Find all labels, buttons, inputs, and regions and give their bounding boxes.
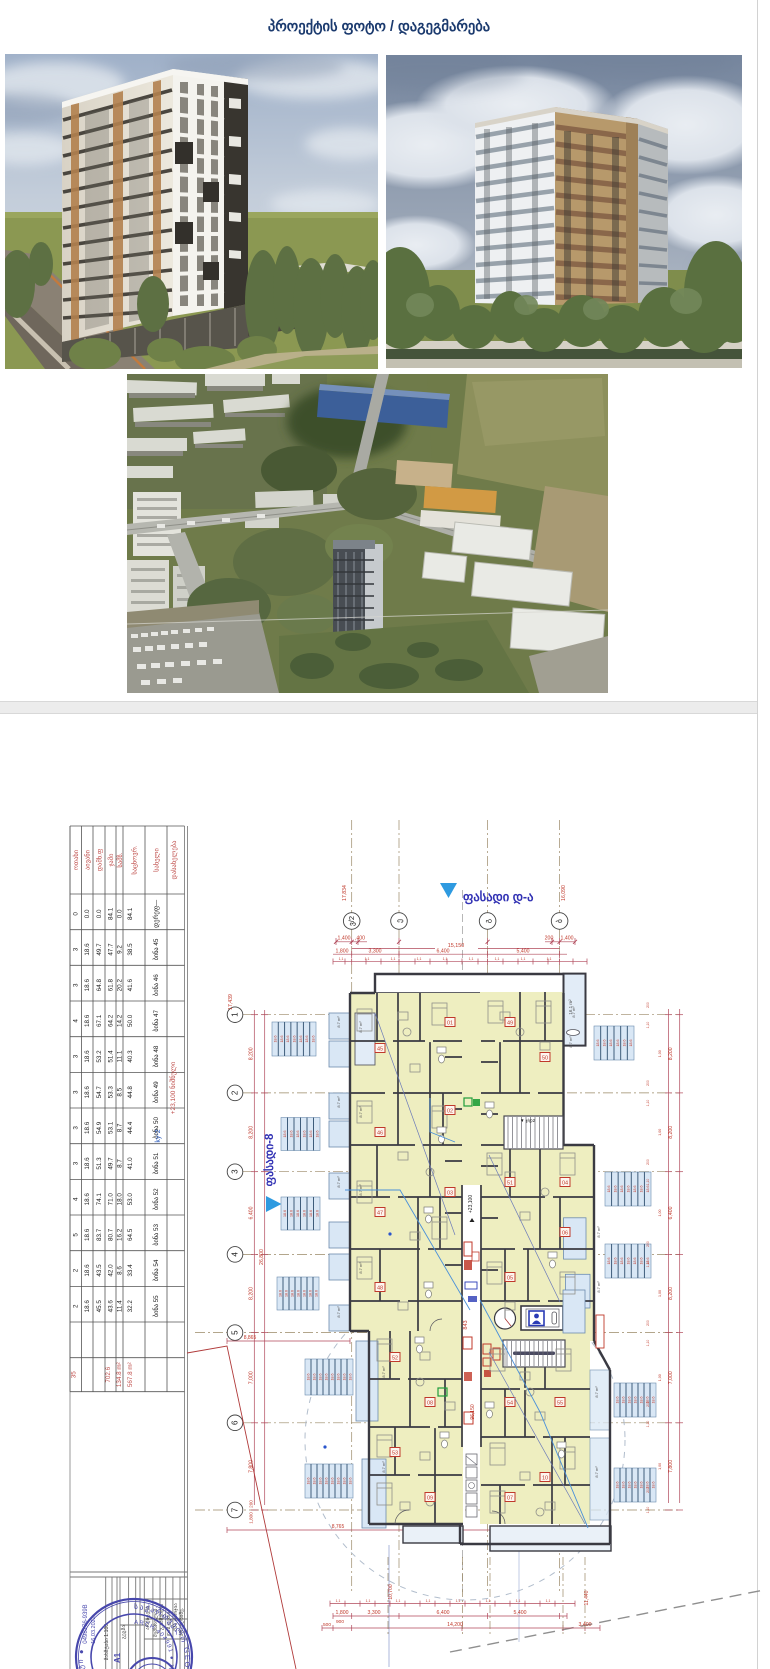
svg-text:ბინა 52: ბინა 52 [152,1188,160,1210]
svg-text:სახელი: სახელი [153,848,161,872]
svg-text:18.6: 18.6 [84,979,91,992]
svg-text:18.6: 18.6 [286,1036,290,1043]
svg-text:ბინა 47: ბინა 47 [152,1009,160,1031]
svg-text:54.9: 54.9 [96,1121,103,1134]
svg-text:1,1: 1,1 [391,957,396,961]
svg-text:1,800: 1,800 [249,1512,254,1524]
svg-text:8.7 m²: 8.7 m² [594,1466,599,1478]
svg-text:48: 48 [377,1286,383,1292]
svg-text:A1: A1 [113,1652,122,1663]
svg-text:67.1: 67.1 [96,1014,103,1027]
svg-text:200: 200 [646,1002,650,1008]
svg-text:51.4: 51.4 [108,1050,115,1063]
svg-text:18.6: 18.6 [289,1210,293,1217]
svg-text:54: 54 [507,1401,513,1407]
svg-text:18.6: 18.6 [616,1040,620,1047]
svg-text:53.3: 53.3 [108,1086,115,1099]
svg-text:3: 3 [73,1054,80,1058]
svg-text:4: 4 [231,1252,240,1257]
svg-text:8,200: 8,200 [668,1126,674,1139]
svg-text:8.7 m²: 8.7 m² [336,1016,341,1028]
svg-text:18.6: 18.6 [331,1374,335,1381]
svg-text:18.6: 18.6 [279,1290,283,1297]
svg-text:53: 53 [392,1451,398,1457]
svg-text:ბინა 51: ბინა 51 [152,1152,160,1174]
svg-text:05: 05 [507,1276,513,1282]
svg-text:49: 49 [507,1021,513,1027]
svg-text:8.7 m²: 8.7 m² [568,1036,573,1048]
svg-text:1,00: 1,00 [658,1050,662,1057]
svg-text:06: 06 [562,1231,568,1237]
svg-text:+23,100: +23,100 [468,1195,474,1213]
svg-text:18.6: 18.6 [315,1131,319,1138]
svg-text:8.7 m²: 8.7 m² [358,1021,363,1033]
svg-text:7,000: 7,000 [249,1371,255,1384]
svg-text:8.7 m²: 8.7 m² [381,1366,386,1378]
svg-text:1,1: 1,1 [426,1599,431,1603]
svg-text:43.6: 43.6 [108,1300,115,1313]
svg-text:18.6: 18.6 [84,1050,91,1063]
svg-text:0: 0 [73,912,80,916]
svg-text:43.5: 43.5 [96,1264,103,1277]
svg-text:83.7: 83.7 [96,1228,103,1241]
svg-text:18.6: 18.6 [622,1397,626,1404]
svg-text:8,200: 8,200 [249,1047,255,1060]
svg-text:3: 3 [73,1090,80,1094]
svg-text:49.7: 49.7 [96,943,103,956]
svg-text:18.6: 18.6 [331,1478,335,1485]
svg-text:1,400: 1,400 [561,936,574,942]
svg-text:1,1: 1,1 [521,957,526,961]
svg-text:11.1: 11.1 [117,1050,124,1062]
svg-text:18.6: 18.6 [616,1397,620,1404]
svg-text:18.6: 18.6 [291,1290,295,1297]
svg-text:18.6: 18.6 [596,1040,600,1047]
svg-text:17,439: 17,439 [228,994,234,1010]
svg-text:18.6: 18.6 [307,1478,311,1485]
svg-text:8.7 m²: 8.7 m² [358,1106,363,1118]
svg-text:18.6: 18.6 [84,1228,91,1241]
svg-text:1,10: 1,10 [646,1421,650,1428]
svg-text:40.3: 40.3 [127,1050,134,1063]
svg-text:18.6: 18.6 [622,1482,626,1489]
svg-text:ოთახი: ოთახი [72,849,80,870]
svg-text:8.7: 8.7 [117,1159,124,1168]
svg-text:18.6: 18.6 [633,1186,637,1193]
svg-text:საცხოვრ.: საცხოვრ. [131,845,139,874]
svg-text:200: 200 [646,1241,650,1247]
svg-text:41.0: 41.0 [127,1157,134,1170]
svg-text:18.6: 18.6 [319,1478,323,1485]
svg-text:ვ/2: ვ/2 [347,916,356,926]
svg-text:38.5: 38.5 [127,943,134,956]
svg-text:4: 4 [73,1197,80,1201]
svg-text:18.6: 18.6 [613,1186,617,1193]
svg-text:900: 900 [336,1619,344,1625]
svg-text:41.6: 41.6 [127,979,134,992]
svg-text:ბინა 53: ბინა 53 [152,1223,160,1245]
svg-text:0.0: 0.0 [117,909,124,918]
svg-text:61.8: 61.8 [108,979,115,992]
svg-text:200: 200 [646,1320,650,1326]
svg-text:02: 02 [447,1109,453,1115]
svg-text:7,000: 7,000 [668,1371,674,1384]
svg-text:53.0: 53.0 [127,1193,134,1206]
svg-text:1,10: 1,10 [646,1022,650,1029]
svg-text:3,300: 3,300 [369,949,382,955]
svg-text:5,400: 5,400 [517,949,530,955]
svg-text:26,800: 26,800 [259,1249,265,1265]
svg-text:18.0: 18.0 [117,1193,124,1206]
svg-text:18.6: 18.6 [616,1482,620,1489]
svg-text:01: 01 [447,1021,453,1027]
svg-text:53.2: 53.2 [96,1050,103,1063]
svg-text:18.6: 18.6 [84,1157,91,1170]
svg-text:11,440: 11,440 [584,1590,590,1605]
svg-text:18.6: 18.6 [305,1036,309,1043]
svg-text:18.6: 18.6 [640,1186,644,1193]
svg-text:18.6: 18.6 [629,1040,633,1047]
svg-text:17,834: 17,834 [342,885,348,901]
svg-text:18.6: 18.6 [634,1482,638,1489]
svg-text:1,00: 1,00 [658,1290,662,1297]
svg-text:ბინა 54: ბინა 54 [152,1259,160,1281]
svg-text:50.0: 50.0 [127,1014,134,1027]
svg-text:18.6: 18.6 [640,1397,644,1404]
svg-text:14.2: 14.2 [117,1014,124,1027]
svg-text:გ: გ [483,918,492,923]
svg-text:1,1: 1,1 [495,957,500,961]
svg-text:8.7 m²: 8.7 m² [381,1461,386,1473]
svg-text:8.6: 8.6 [117,1266,124,1275]
svg-text:6,400: 6,400 [249,1206,255,1219]
svg-text:,400: ,400 [355,936,365,942]
svg-text:134.8 m²: 134.8 m² [116,1362,123,1387]
svg-text:18.6: 18.6 [309,1131,313,1138]
svg-text:18.6: 18.6 [84,1086,91,1099]
svg-text:18.6: 18.6 [307,1374,311,1381]
svg-text:49.7: 49.7 [108,1157,115,1170]
svg-text:1,1: 1,1 [365,957,370,961]
svg-text:84.1: 84.1 [108,907,115,920]
svg-text:18.6: 18.6 [627,1258,631,1265]
svg-text:200: 200 [249,1500,254,1508]
svg-text:ბინა 49: ბინა 49 [152,1081,160,1103]
svg-text:4: 4 [73,1019,80,1023]
svg-text:1,1: 1,1 [456,1599,461,1603]
svg-text:18.6: 18.6 [297,1290,301,1297]
svg-text:33.4: 33.4 [127,1264,134,1277]
svg-text:2: 2 [73,1304,80,1308]
svg-text:1,800: 1,800 [336,949,349,955]
svg-text:3: 3 [73,1161,80,1165]
svg-text:71.0: 71.0 [108,1193,115,1206]
svg-text:8,200: 8,200 [249,1126,255,1139]
svg-text:18.6: 18.6 [343,1478,347,1485]
svg-text:1,1: 1,1 [396,1599,401,1603]
svg-text:18.6: 18.6 [337,1478,341,1485]
svg-text:16.03.2022: 16.03.2022 [91,1616,97,1644]
svg-text:დასახელება: დასახელება [170,840,178,880]
svg-text:1,10: 1,10 [646,1261,650,1268]
svg-text:8,200: 8,200 [249,1287,255,1300]
svg-text:18.6: 18.6 [315,1290,319,1297]
svg-text:500: 500 [323,1622,331,1628]
svg-text:0498176-939B: 0498176-939B [83,1604,89,1643]
svg-text:5,400: 5,400 [514,1610,527,1616]
svg-text:04: 04 [562,1181,568,1187]
svg-text:3: 3 [73,983,80,987]
svg-text:1,1: 1,1 [547,957,552,961]
svg-text:18.6: 18.6 [283,1210,287,1217]
svg-text:8.7 m²: 8.7 m² [571,1006,576,1018]
svg-text:18.6: 18.6 [313,1374,317,1381]
svg-text:8.7: 8.7 [117,1123,124,1132]
svg-text:5: 5 [231,1330,240,1335]
svg-text:18.6: 18.6 [274,1036,278,1043]
svg-text:ე: ე [395,919,404,923]
svg-text:18.6: 18.6 [627,1186,631,1193]
svg-text:18.6: 18.6 [634,1397,638,1404]
svg-text:843: 843 [463,1320,469,1329]
svg-text:18.6: 18.6 [349,1374,353,1381]
svg-text:18.6: 18.6 [613,1258,617,1265]
svg-text:18.6: 18.6 [640,1258,644,1265]
svg-text:ფასადი დ-ა: ფასადი დ-ა [463,889,534,905]
svg-text:702.6: 702.6 [105,1366,112,1382]
svg-text:10: 10 [542,1476,548,1482]
svg-text:ბ: ბ [555,919,564,923]
svg-text:8.7 m²: 8.7 m² [596,1281,601,1293]
svg-text:8.7 m²: 8.7 m² [596,1226,601,1238]
svg-text:54.7: 54.7 [96,1086,103,1099]
svg-text:18.6: 18.6 [296,1210,300,1217]
svg-text:200: 200 [646,1487,650,1493]
svg-text:6,400: 6,400 [437,1610,450,1616]
svg-text:2: 2 [231,1090,240,1095]
svg-text:18.6: 18.6 [628,1397,632,1404]
svg-text:64.8: 64.8 [96,979,103,992]
svg-text:07: 07 [507,1496,513,1502]
svg-text:18.6: 18.6 [628,1482,632,1489]
svg-text:ბინა 48: ბინა 48 [152,1045,160,1067]
svg-text:1,1: 1,1 [469,957,474,961]
svg-text:16,090: 16,090 [561,885,567,901]
svg-text:84.1: 84.1 [127,907,134,920]
svg-text:15,150: 15,150 [448,943,465,949]
svg-text:ky-2: ky-2 [155,1129,162,1142]
svg-text:45.5: 45.5 [96,1300,103,1313]
svg-text:8,200: 8,200 [668,1287,674,1300]
svg-text:18.6: 18.6 [609,1040,613,1047]
svg-text:ბინა 55: ბინა 55 [152,1295,160,1317]
svg-text:567.8 m²: 567.8 m² [127,1362,134,1387]
svg-text:18.6: 18.6 [309,1210,313,1217]
svg-text:3,300: 3,300 [368,1610,381,1616]
svg-text:18.6: 18.6 [652,1397,656,1404]
svg-text:1,400: 1,400 [338,936,351,942]
svg-text:18.6: 18.6 [84,943,91,956]
svg-text:ჯამი: ჯამი [107,853,115,867]
svg-text:18.6: 18.6 [607,1258,611,1265]
svg-text:1,800: 1,800 [336,1610,349,1616]
svg-text:18.6: 18.6 [283,1131,287,1138]
svg-text:18.6: 18.6 [633,1258,637,1265]
svg-text:18.6: 18.6 [84,1014,91,1027]
svg-text:0.0: 0.0 [96,909,103,918]
svg-text:0.0: 0.0 [84,909,91,918]
svg-text:18.6: 18.6 [646,1186,650,1193]
svg-text:6: 6 [231,1420,240,1425]
svg-text:6,400: 6,400 [668,1206,674,1219]
svg-text:1,1: 1,1 [486,1599,491,1603]
svg-text:დამხ.ფ: დამხ.ფ [96,848,104,871]
svg-text:18.6: 18.6 [299,1036,303,1043]
svg-text:7,800: 7,800 [668,1460,674,1473]
svg-text:7: 7 [231,1507,240,1512]
svg-text:ფასადი-8: ფასადი-8 [262,1133,277,1186]
svg-text:ბინა 46: ბინა 46 [152,974,160,996]
svg-text:08: 08 [427,1401,433,1407]
svg-text:1,1: 1,1 [516,1599,521,1603]
svg-text:18.6: 18.6 [337,1374,341,1381]
svg-text:200: 200 [646,1080,650,1086]
svg-text:8.7 m²: 8.7 m² [358,1262,363,1274]
svg-text:45: 45 [377,1047,383,1053]
svg-text:46: 46 [377,1131,383,1137]
svg-text:1,10: 1,10 [646,1179,650,1186]
svg-text:3: 3 [73,1126,80,1130]
svg-text:3: 3 [231,1169,240,1174]
svg-text:18.6: 18.6 [84,1264,91,1277]
svg-text:8,765: 8,765 [332,1524,345,1530]
svg-text:50: 50 [542,1056,548,1062]
svg-text:გეგმა: გეგმა [120,1625,127,1639]
svg-text:18.6: 18.6 [349,1478,353,1485]
svg-text:18.6: 18.6 [603,1040,607,1047]
svg-text:5: 5 [73,1233,80,1237]
svg-text:9.2: 9.2 [117,945,124,954]
svg-text:1,1: 1,1 [443,957,448,961]
svg-text:6,400: 6,400 [437,949,450,955]
svg-text:1,1: 1,1 [336,1599,341,1603]
svg-text:1,10: 1,10 [646,1507,650,1514]
svg-text:18.6: 18.6 [84,1193,91,1206]
svg-text:1,00: 1,00 [658,1210,662,1217]
svg-text:ბინა 45: ბინა 45 [152,938,160,960]
svg-text:1,10: 1,10 [646,1340,650,1347]
svg-text:18.6: 18.6 [302,1210,306,1217]
svg-text:03: 03 [447,1191,453,1197]
svg-text:18.6: 18.6 [311,1036,315,1043]
svg-text:18.6: 18.6 [309,1290,313,1297]
svg-text:18.6: 18.6 [623,1040,627,1047]
svg-text:3: 3 [73,947,80,951]
svg-text:8.7 m²: 8.7 m² [336,1306,341,1318]
svg-text:11.4: 11.4 [117,1300,124,1312]
svg-text:64.5: 64.5 [127,1228,134,1241]
svg-text:18.6: 18.6 [313,1478,317,1485]
svg-text:18.6: 18.6 [302,1131,306,1138]
svg-text:200: 200 [545,936,554,942]
svg-text:8.7 m²: 8.7 m² [336,1096,341,1108]
svg-text:10,700: 10,700 [388,1584,394,1600]
svg-text:1: 1 [231,1012,240,1017]
svg-text:8.7 m²: 8.7 m² [594,1386,599,1398]
svg-text:3,400: 3,400 [579,1622,592,1628]
svg-text:47: 47 [377,1211,383,1217]
svg-text:18.6: 18.6 [607,1186,611,1193]
svg-text:64.2: 64.2 [108,1014,115,1027]
svg-text:18.6: 18.6 [315,1210,319,1217]
svg-text:1,1: 1,1 [417,957,422,961]
svg-text:14,200: 14,200 [447,1622,463,1628]
svg-text:18.6: 18.6 [620,1186,624,1193]
svg-text:+23,100 ნიშნული: +23,100 ნიშნული [169,1061,177,1114]
svg-text:სამზ.: სამზ. [116,852,124,867]
svg-text:200: 200 [646,1401,650,1407]
svg-text:დერეფ—: დერეფ— [153,899,160,928]
svg-text:55: 55 [557,1401,563,1407]
svg-text:09: 09 [427,1496,433,1502]
svg-text:18.6: 18.6 [325,1374,329,1381]
svg-text:47.7: 47.7 [108,943,115,956]
svg-text:1,1: 1,1 [366,1599,371,1603]
svg-text:8,200: 8,200 [668,1047,674,1060]
svg-text:2: 2 [73,1268,80,1272]
svg-text:35: 35 [71,1371,78,1379]
svg-text:53.1: 53.1 [108,1121,115,1134]
svg-text:18.6: 18.6 [640,1482,644,1489]
svg-text:8.5: 8.5 [117,1087,124,1096]
svg-text:1,00: 1,00 [658,1129,662,1136]
svg-text:20.2: 20.2 [117,979,124,992]
svg-text:16.2: 16.2 [117,1228,124,1241]
svg-text:51.3: 51.3 [96,1157,103,1170]
svg-text:18.6: 18.6 [303,1290,307,1297]
svg-text:18.6: 18.6 [285,1290,289,1297]
svg-text:52: 52 [392,1356,398,1362]
svg-text:18.6: 18.6 [620,1258,624,1265]
svg-text:მასშტაბი 1:100: მასშტაბი 1:100 [103,1624,110,1661]
svg-text:18.6: 18.6 [652,1482,656,1489]
svg-text:18.6: 18.6 [84,1121,91,1134]
svg-text:18.6: 18.6 [319,1374,323,1381]
svg-text:18.6: 18.6 [84,1300,91,1313]
svg-text:8.7 m²: 8.7 m² [336,1176,341,1188]
svg-text:80.7: 80.7 [108,1228,115,1241]
svg-text:32.2: 32.2 [127,1300,134,1313]
svg-text:51: 51 [507,1181,513,1187]
svg-text:8,865: 8,865 [244,1335,257,1341]
svg-text:74.1: 74.1 [96,1193,103,1206]
svg-text:აივანი: აივანი [84,849,92,870]
svg-text:1,1: 1,1 [339,957,344,961]
svg-text:44.8: 44.8 [127,1086,134,1099]
svg-text:18.6: 18.6 [293,1036,297,1043]
svg-text:1,00: 1,00 [658,1463,662,1470]
svg-text:200: 200 [646,1159,650,1165]
svg-text:42.0: 42.0 [108,1264,115,1277]
svg-text:18.6: 18.6 [289,1131,293,1138]
svg-text:44.4: 44.4 [127,1121,134,1134]
svg-text:18.6: 18.6 [325,1478,329,1485]
svg-text:18.6: 18.6 [280,1036,284,1043]
svg-text:18.6: 18.6 [296,1131,300,1138]
svg-text:1,10: 1,10 [646,1100,650,1107]
svg-text:18.6: 18.6 [343,1374,347,1381]
svg-text:1,1: 1,1 [546,1599,551,1603]
